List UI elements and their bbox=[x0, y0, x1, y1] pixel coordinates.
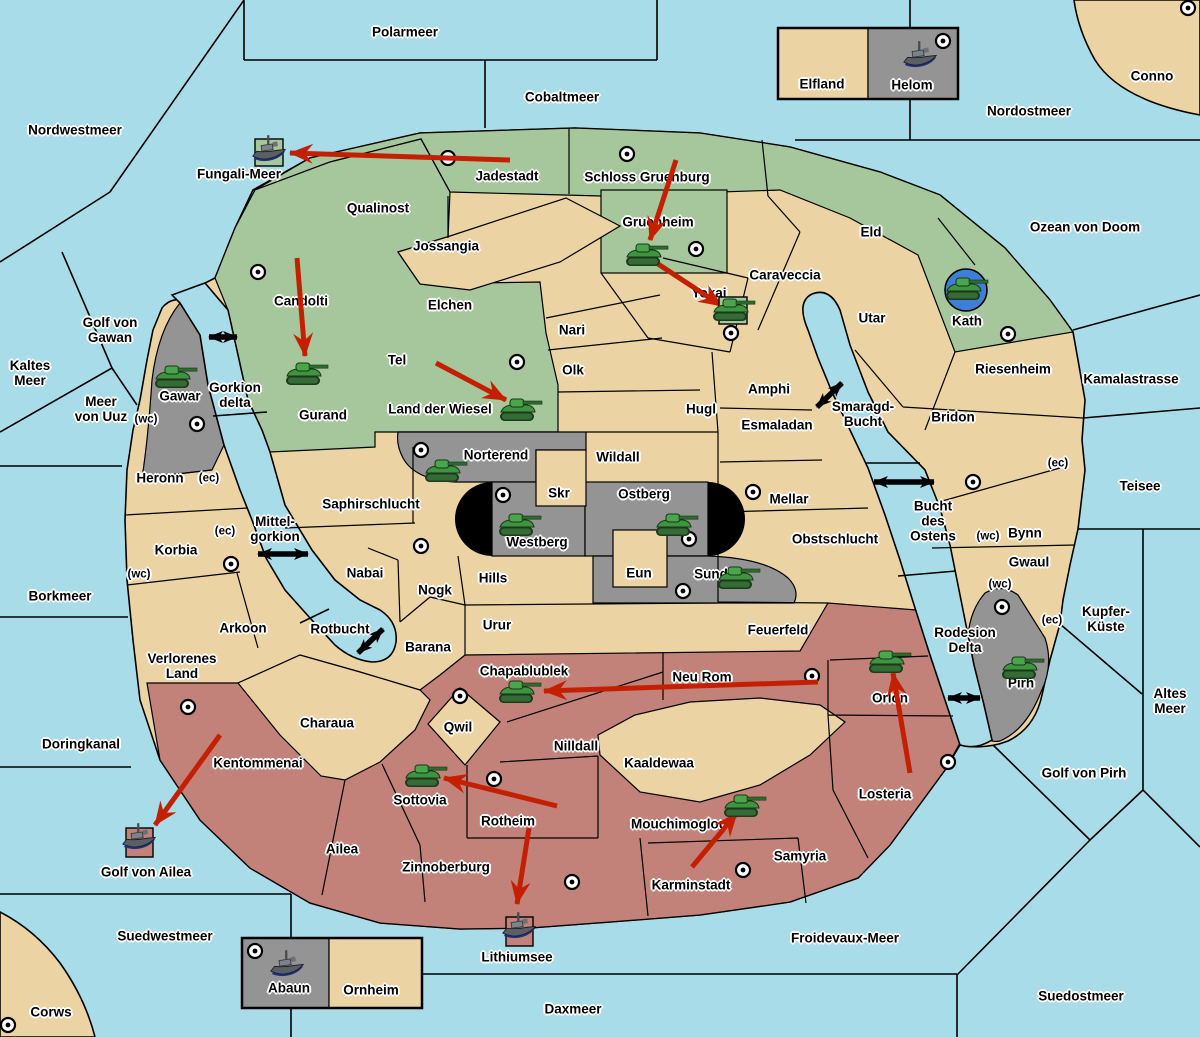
ship-icon bbox=[904, 41, 936, 67]
tank-icon bbox=[1002, 657, 1044, 679]
tank-icon bbox=[499, 514, 541, 536]
ship-unit[interactable] bbox=[253, 135, 285, 166]
tank-unit[interactable] bbox=[724, 795, 766, 817]
tank-icon bbox=[155, 366, 197, 388]
tank-icon bbox=[869, 651, 911, 673]
move-order-arrow bbox=[650, 160, 676, 240]
move-order-arrow bbox=[444, 778, 557, 806]
ship-unit[interactable] bbox=[904, 41, 936, 67]
tank-unit[interactable] bbox=[500, 399, 542, 421]
tank-unit[interactable] bbox=[626, 244, 668, 266]
move-order-arrow bbox=[517, 828, 529, 904]
tank-unit[interactable] bbox=[945, 269, 988, 311]
tank-icon bbox=[656, 514, 698, 536]
tank-icon bbox=[405, 765, 447, 787]
ship-unit[interactable] bbox=[123, 823, 155, 857]
tank-icon bbox=[500, 399, 542, 421]
tank-unit[interactable] bbox=[155, 366, 197, 388]
tank-icon bbox=[724, 795, 766, 817]
units-pieces-layer[interactable] bbox=[123, 41, 1044, 976]
tank-icon bbox=[718, 567, 760, 589]
tank-unit[interactable] bbox=[1002, 657, 1044, 679]
tank-unit[interactable] bbox=[869, 651, 911, 673]
units-layer bbox=[0, 0, 1200, 1037]
tank-icon bbox=[425, 460, 467, 482]
move-order-arrow bbox=[290, 153, 510, 160]
game-map: PolarmeerNordwestmeerCobaltmeerNordostme… bbox=[0, 0, 1200, 1037]
move-order-arrow bbox=[692, 813, 737, 867]
ship-unit[interactable] bbox=[271, 950, 303, 976]
move-order-arrow bbox=[544, 682, 818, 691]
tank-icon bbox=[499, 681, 541, 703]
tank-unit[interactable] bbox=[425, 460, 467, 482]
move-order-arrow bbox=[155, 735, 220, 825]
move-order-arrow bbox=[893, 673, 910, 773]
move-order-arrow bbox=[655, 262, 722, 306]
move-order-arrow bbox=[297, 258, 305, 356]
tank-unit[interactable] bbox=[499, 681, 541, 703]
tank-icon bbox=[626, 244, 668, 266]
tank-unit[interactable] bbox=[405, 765, 447, 787]
tank-unit[interactable] bbox=[718, 567, 760, 589]
move-arrows-layer bbox=[155, 153, 910, 904]
move-order-arrow bbox=[436, 363, 506, 400]
tank-unit[interactable] bbox=[713, 297, 755, 324]
ship-unit[interactable] bbox=[503, 912, 535, 946]
tank-unit[interactable] bbox=[499, 514, 541, 536]
ship-icon bbox=[271, 950, 303, 976]
tank-unit[interactable] bbox=[656, 514, 698, 536]
tank-unit[interactable] bbox=[286, 363, 328, 385]
tank-icon bbox=[286, 363, 328, 385]
